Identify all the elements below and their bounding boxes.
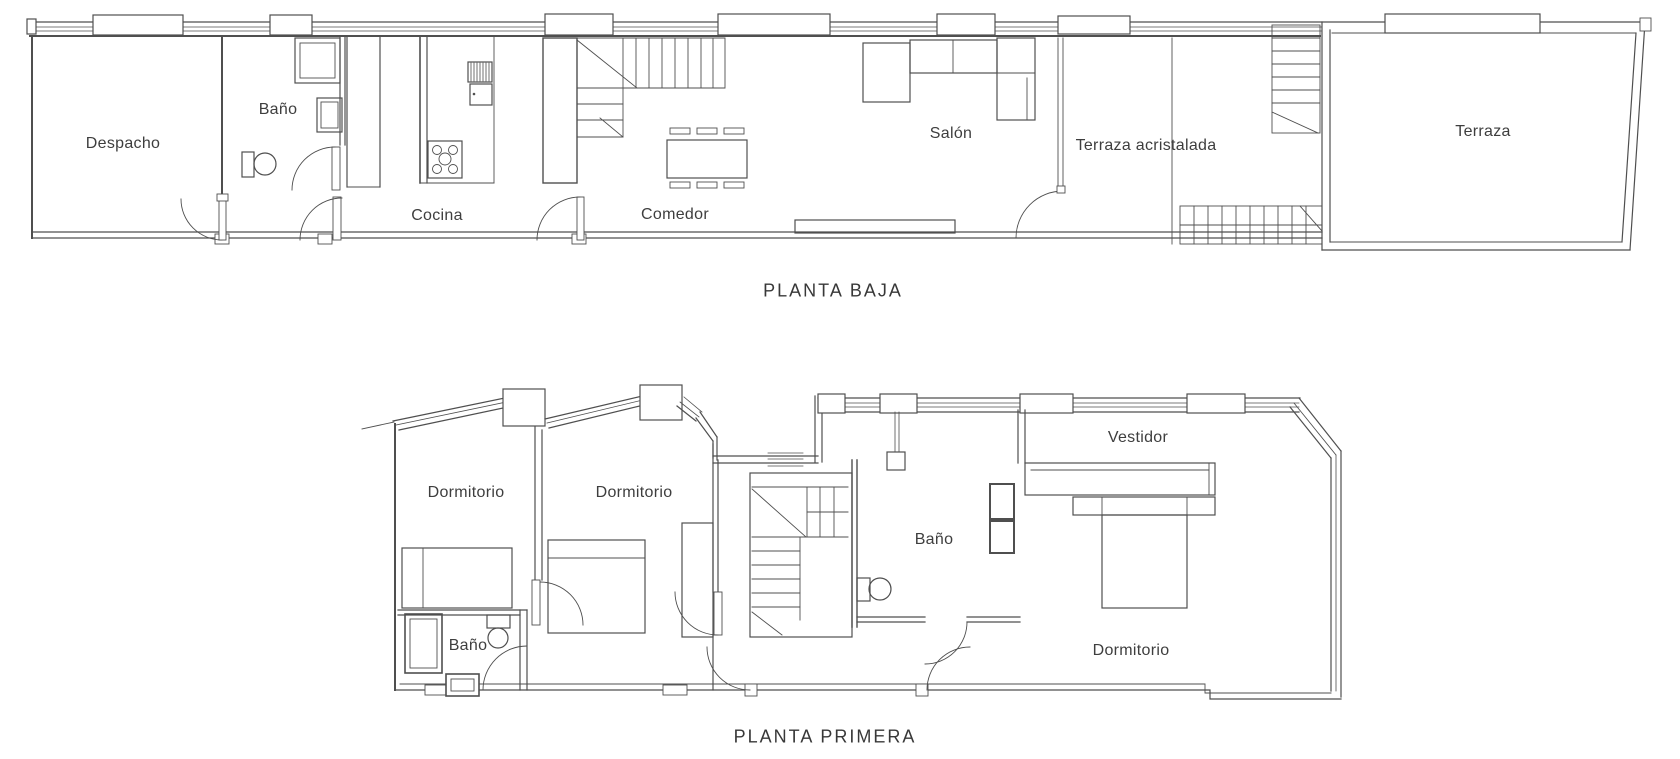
symbol-fridge (468, 62, 492, 105)
ff-wall-bedrooms (532, 427, 583, 625)
glass-wall-salon-terraza (1016, 38, 1065, 238)
planta-baja-drawing (27, 14, 1651, 250)
floor-title-planta-primera: PLANTA PRIMERA (734, 727, 917, 748)
ff-vestidor (1018, 410, 1215, 495)
ff-wall-bottom (395, 684, 1341, 699)
room-label-dormitorio-master: Dormitorio (1093, 642, 1170, 660)
symbol-washbasin (317, 98, 342, 132)
symbol-washing-machine (295, 38, 340, 83)
room-label-bano-pb: Baño (259, 101, 298, 119)
symbol-kitchen-counter (420, 36, 494, 183)
symbol-sideboard (795, 220, 955, 233)
ff-landing-wall (713, 396, 822, 466)
ff-facade-bedroom2 (545, 385, 717, 460)
symbol-wardrobe2 (682, 523, 713, 637)
room-label-comedor: Comedor (641, 206, 709, 224)
symbol-bed2 (548, 540, 645, 633)
symbol-stove (428, 141, 462, 178)
room-label-bano-2: Baño (449, 637, 488, 655)
room-label-salon: Salón (930, 125, 972, 143)
room-label-vestidor: Vestidor (1108, 429, 1168, 447)
symbol-ff-staircase (750, 473, 852, 637)
symbol-dining-table (667, 128, 747, 188)
floor-plan-drawing (0, 0, 1680, 759)
room-label-terraza: Terraza (1455, 123, 1510, 141)
symbol-toilet (242, 152, 276, 177)
room-label-despacho: Despacho (86, 135, 160, 153)
room-label-bano-master: Baño (915, 531, 954, 549)
wall-cocina-left (420, 36, 427, 183)
room-label-dormitorio-2: Dormitorio (596, 484, 673, 502)
ff-wall-right (1331, 451, 1341, 697)
floor-title-planta-baja: PLANTA BAJA (763, 281, 903, 302)
room-label-cocina: Cocina (411, 207, 463, 225)
symbol-staircase-up (577, 38, 725, 137)
symbol-staircase-terrace (1272, 25, 1320, 133)
symbol-double-bed (1073, 497, 1215, 608)
planta-primera-drawing (362, 385, 1341, 699)
ff-hall (675, 444, 750, 690)
ff-wall-top-right (818, 394, 1341, 458)
ff-facade-bedroom1 (362, 389, 545, 430)
symbol-corner-sofa (863, 38, 1035, 120)
floor-plan-page: Despacho Baño Cocina Comedor Salón Terra… (0, 0, 1680, 759)
room-label-dormitorio-1: Dormitorio (428, 484, 505, 502)
wall-despacho-bano (181, 36, 228, 240)
room-label-terraza-acristalada: Terraza acristalada (1076, 137, 1217, 155)
symbol-bed1 (402, 548, 512, 608)
